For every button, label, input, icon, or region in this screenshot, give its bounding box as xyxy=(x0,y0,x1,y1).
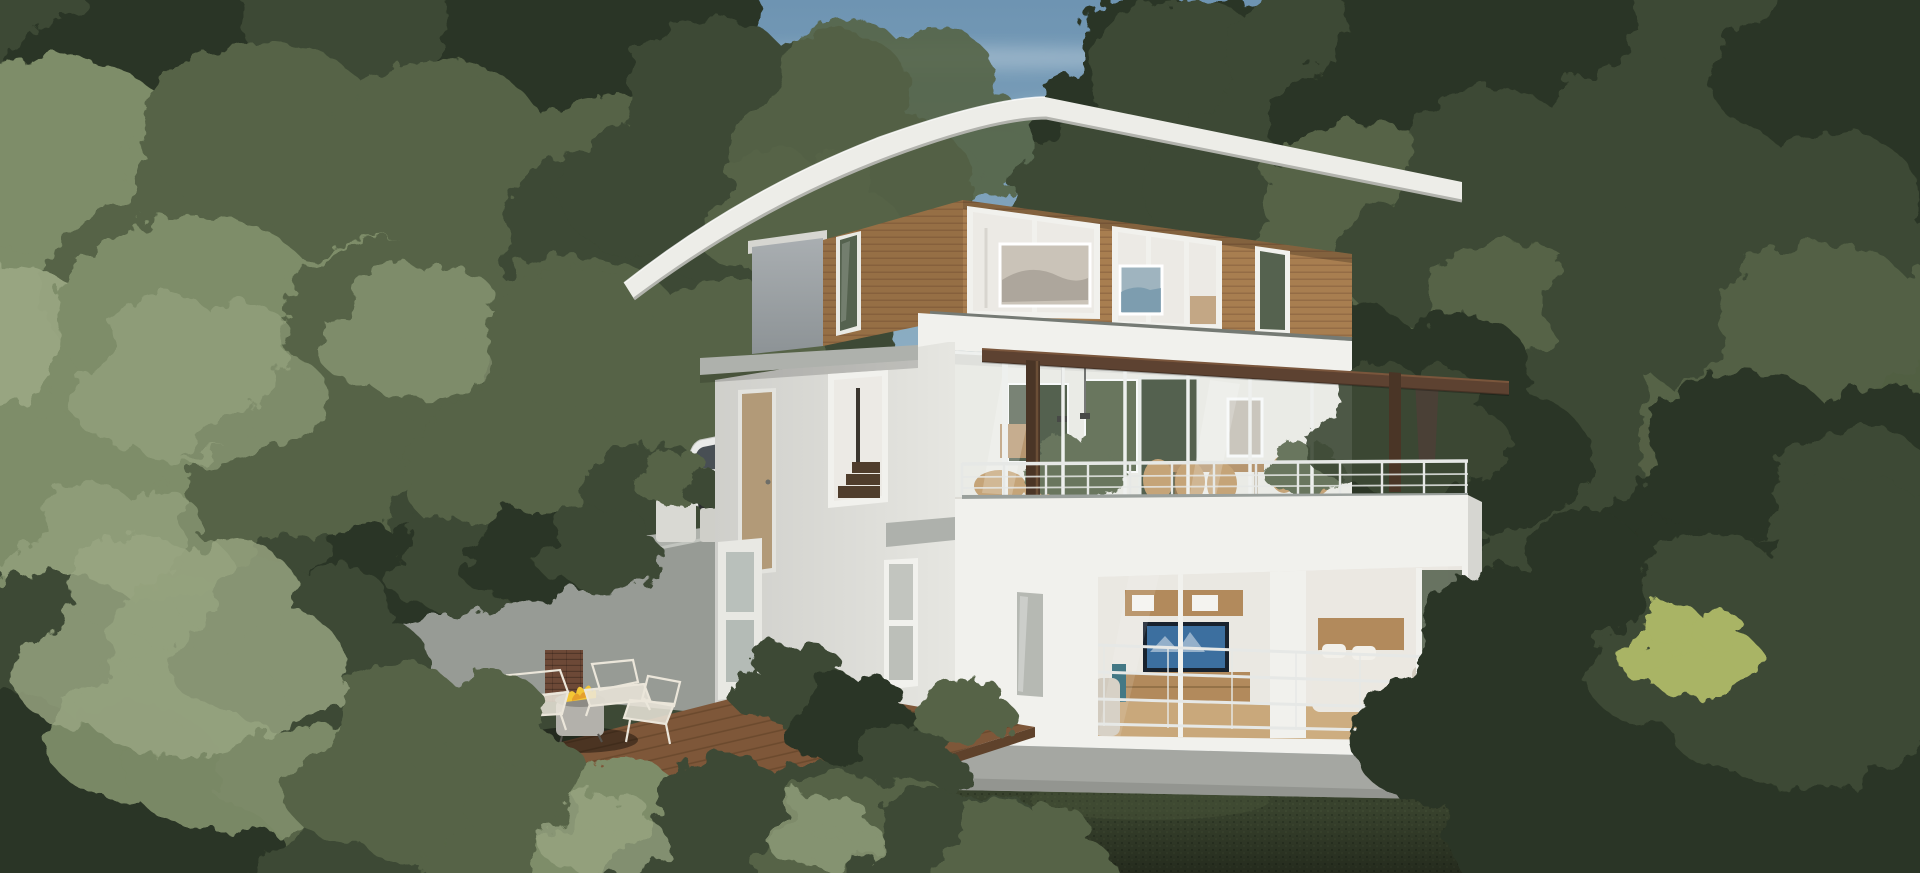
top-side-window xyxy=(836,231,861,336)
stair-screen xyxy=(856,388,860,472)
door-handle xyxy=(766,480,771,485)
stair-core-box xyxy=(748,230,827,354)
top-front-window-2 xyxy=(1112,226,1222,331)
lower-narrow-window xyxy=(1012,587,1048,702)
house-render-scene xyxy=(0,0,1920,873)
pillow xyxy=(1322,644,1346,658)
patio-tall-window xyxy=(884,558,918,690)
top-corner-window xyxy=(1255,246,1290,334)
stair-window xyxy=(828,370,888,508)
top-front-window-1 xyxy=(967,206,1100,319)
render-canvas xyxy=(0,0,1920,873)
